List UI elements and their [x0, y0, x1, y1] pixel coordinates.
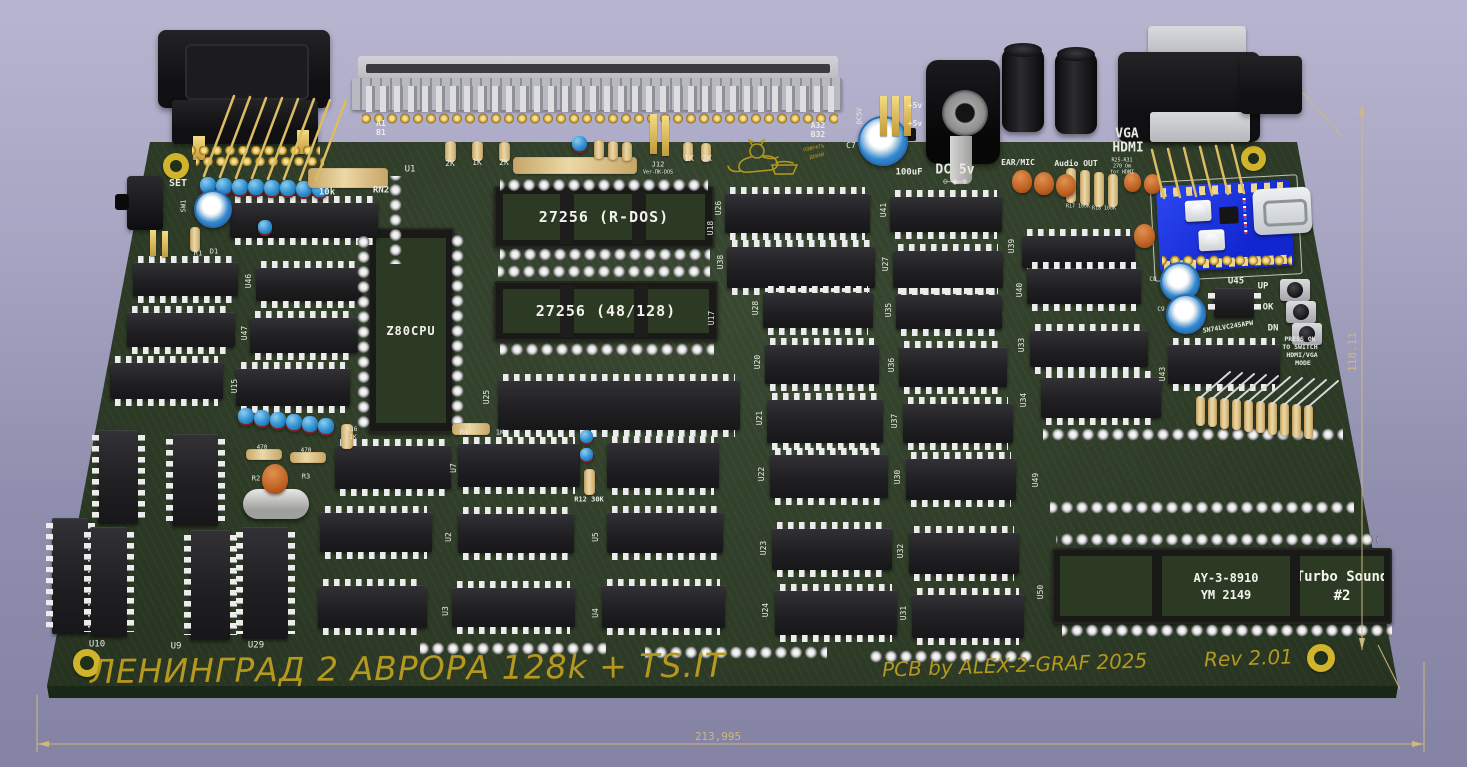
resistor	[1292, 404, 1301, 438]
pin-strip	[362, 110, 838, 126]
capacitor	[248, 179, 264, 195]
silkscreen-label: B32	[811, 131, 825, 139]
dip-chip	[763, 292, 873, 328]
dip-chip	[767, 399, 883, 443]
dip-chip	[318, 585, 427, 628]
dip-chip	[727, 246, 875, 288]
resistor	[622, 142, 632, 161]
dip-chip	[110, 362, 223, 399]
silkscreen-label: A32	[811, 122, 825, 130]
dip-chip	[250, 317, 358, 353]
dip-chip	[896, 294, 1002, 329]
z80-label: Z80CPU	[386, 324, 435, 338]
board-rev-silkscreen: Rev 2.01	[1204, 644, 1294, 671]
silkscreen-label: 1K	[349, 435, 356, 441]
silkscreen-label: R17 100K	[1066, 205, 1090, 210]
silkscreen-label: U29	[248, 642, 264, 651]
pin-strip	[192, 146, 320, 155]
dip-chip	[190, 530, 230, 640]
ceramic-capacitor	[1012, 170, 1032, 193]
dip-chip	[320, 512, 432, 552]
dip-chip	[903, 403, 1013, 443]
silkscreen-label: U36	[888, 358, 896, 372]
silkscreen-label: 470	[257, 445, 268, 451]
dip-chip	[1214, 288, 1254, 318]
dip-chip	[770, 454, 888, 498]
silkscreen-label: SET	[169, 179, 187, 189]
silkscreen-label: R18 100K	[1092, 207, 1116, 212]
silkscreen-label: RN2	[373, 187, 389, 196]
silkscreen-label: 470	[301, 448, 312, 454]
silkscreen-label: U27	[882, 257, 890, 271]
silkscreen-label: U50	[1037, 585, 1045, 599]
pin-strip	[450, 232, 465, 430]
resistor	[608, 141, 618, 160]
ceramic-capacitor	[1056, 174, 1076, 197]
pin-strip	[196, 157, 324, 166]
silkscreen-label: U4	[592, 608, 600, 618]
silkscreen-label: B1	[376, 129, 386, 137]
dip-chip	[335, 445, 451, 489]
dip-chip	[498, 380, 740, 430]
eprom1-label: 27256 (R-DOS)	[539, 208, 669, 226]
pin-strip	[1062, 620, 1392, 641]
silkscreen-label: U38	[717, 255, 725, 269]
silkscreen-label: C9	[1157, 307, 1164, 313]
dip-chip	[1027, 268, 1141, 304]
silkscreen-label: U9	[171, 643, 182, 652]
silkscreen-label: U31	[900, 606, 908, 620]
silkscreen-label: U33	[1018, 338, 1026, 352]
dip-chip	[127, 312, 235, 347]
pin-strip	[498, 263, 710, 279]
pin-strip	[366, 86, 834, 112]
silkscreen-label: R3	[302, 474, 310, 481]
capacitor	[580, 448, 593, 461]
silkscreen-label: PRESS OK	[1284, 336, 1315, 343]
dip-chip	[1041, 377, 1161, 418]
pin-strip	[500, 178, 708, 192]
silkscreen-label: 2K	[702, 155, 712, 163]
resistor	[1280, 403, 1289, 436]
silkscreen-label: UP	[1258, 283, 1269, 292]
pin-strip	[500, 341, 714, 358]
ceramic-capacitor	[1034, 172, 1054, 195]
silkscreen-label: U46	[245, 274, 253, 288]
silkscreen-label: U15	[231, 379, 239, 393]
silkscreen-label: U43	[1159, 367, 1167, 381]
silkscreen-label: U22	[758, 467, 766, 481]
dip-chip	[906, 458, 1016, 500]
silkscreen-label: R1	[194, 251, 202, 258]
gold-pin	[662, 116, 669, 156]
resistor	[190, 227, 200, 252]
silkscreen-label: U2	[445, 532, 453, 542]
silkscreen-label: OK	[1263, 304, 1274, 313]
silkscreen-label: +5v	[908, 102, 922, 110]
resistor	[584, 469, 595, 495]
gold-pin	[650, 114, 657, 154]
silkscreen-label: C7	[846, 142, 856, 150]
capacitor	[238, 408, 254, 424]
silkscreen-label: U17	[708, 311, 716, 325]
capacitor	[318, 418, 334, 434]
silkscreen-label: C8	[1149, 277, 1156, 283]
gold-pin	[880, 96, 887, 136]
gold-pin	[892, 96, 899, 136]
dip-chip	[133, 262, 238, 296]
silkscreen-label: 1K	[496, 430, 504, 437]
silkscreen-label: R16	[347, 427, 358, 433]
silkscreen-label: R12 30K	[574, 497, 604, 504]
resistor	[1208, 397, 1217, 427]
silkscreen-label: 2K	[445, 160, 455, 168]
silkscreen-label: TO SWITCH	[1282, 344, 1317, 351]
dip-chip	[772, 528, 892, 570]
silkscreen-label: U18	[707, 221, 715, 235]
silkscreen-label: DN	[1268, 325, 1279, 334]
silkscreen-label: for HDMI	[1110, 171, 1134, 176]
silkscreen-label: EAR/MIC	[1001, 159, 1035, 167]
resistor	[1232, 399, 1241, 430]
electrolytic-capacitor	[194, 190, 232, 228]
silkscreen-label: A1	[376, 120, 386, 128]
silkscreen-label: U26	[715, 201, 723, 215]
dip-chip	[725, 193, 870, 233]
capacitor	[280, 180, 296, 196]
silkscreen-label: 100uF	[895, 169, 922, 178]
resistor	[1196, 396, 1205, 426]
pin-strip	[1056, 531, 1378, 548]
silkscreen-label: U21	[756, 411, 764, 425]
resistor	[1080, 170, 1090, 205]
silkscreen-label: MODE	[1295, 360, 1311, 367]
silkscreen-label: U1	[405, 166, 416, 175]
ceramic-capacitor	[1144, 174, 1161, 194]
resistor	[1304, 405, 1313, 439]
resistor	[594, 140, 604, 159]
silkscreen-label: U35	[885, 303, 893, 317]
dip-chip	[890, 196, 1002, 232]
silkscreen-label: U10	[89, 641, 105, 650]
silkscreen-label: SN74LVC245APW	[1202, 320, 1253, 334]
silkscreen-label: DC 5v	[935, 164, 974, 177]
capacitor	[572, 136, 587, 151]
capacitor	[264, 180, 280, 196]
dip-chip	[602, 585, 725, 628]
silkscreen-label: R4	[460, 430, 468, 437]
silkscreen-label: U7	[450, 463, 458, 473]
silkscreen-label: U5	[592, 532, 600, 542]
dip-chip	[230, 202, 378, 238]
silkscreen-label: U23	[760, 541, 768, 555]
silkscreen-label: U24	[762, 603, 770, 617]
silkscreen-label: D1	[210, 249, 218, 256]
dip-chip	[52, 518, 88, 634]
silkscreen-label: 2K	[499, 159, 509, 167]
board-title-silkscreen: ЛЕНИНГРАД 2 АВРОРА 128k + TS.IT	[90, 644, 880, 691]
dip-chip	[912, 594, 1024, 638]
dip-chip	[909, 532, 1019, 574]
dip-chip	[242, 527, 288, 639]
silkscreen-label: 1K	[472, 159, 482, 167]
silkscreen-label: U30	[894, 470, 902, 484]
resistor	[1108, 174, 1118, 207]
silkscreen-label: U28	[752, 301, 760, 315]
resistor	[1268, 402, 1277, 435]
resistor	[513, 157, 637, 174]
silkscreen-label: U45	[1228, 278, 1244, 287]
dip-chip	[765, 344, 879, 384]
dip-chip	[172, 434, 218, 526]
capacitor	[580, 430, 593, 443]
silkscreen-label: J12	[652, 162, 665, 169]
dip-chip	[607, 442, 719, 488]
silkscreen-label: U37	[891, 414, 899, 428]
silkscreen-label: ДАВАЙ	[809, 153, 825, 161]
pin-strip	[500, 246, 710, 262]
dip-chip	[1168, 344, 1280, 384]
silkscreen-label: U40	[1016, 283, 1024, 297]
mode-tact-button	[1286, 301, 1316, 323]
silkscreen-label: U41	[880, 203, 888, 217]
pin-strip	[356, 236, 371, 428]
gold-pin	[162, 231, 168, 257]
dip-chip	[236, 368, 350, 406]
dip-chip	[458, 443, 580, 487]
dip-chip	[775, 590, 897, 635]
dip-chip	[458, 513, 574, 553]
silkscreen-label: SW1	[181, 200, 188, 213]
silkscreen-label: U47	[241, 326, 249, 340]
silkscreen-label: +5v	[908, 120, 922, 128]
silkscreen-label: HDMI/VGA	[1286, 352, 1317, 359]
capacitor	[258, 220, 272, 234]
gold-pin	[150, 230, 156, 256]
resistor	[1244, 400, 1253, 432]
dip-chip	[1030, 330, 1148, 367]
capacitor	[232, 179, 248, 195]
electrolytic-capacitor	[1166, 294, 1206, 334]
ceramic-capacitor	[1134, 224, 1155, 248]
silkscreen-label: U25	[483, 390, 491, 404]
ceramic-capacitor	[262, 464, 288, 494]
dip-chip	[899, 347, 1007, 387]
silkscreen-label: Ver-ПК-DOS	[643, 171, 673, 176]
silkscreen-label: U3	[442, 606, 450, 616]
silkscreen-label: U32	[897, 544, 905, 558]
silkscreen-label: DC5V	[857, 108, 864, 125]
capacitor	[270, 412, 286, 428]
silkscreen-label: U20	[754, 355, 762, 369]
eprom2-label: 27256 (48/128)	[536, 302, 676, 320]
dip-chip	[90, 527, 127, 637]
dip-chip	[452, 587, 575, 627]
pin-strip	[1050, 497, 1354, 517]
3d-viewer-canvas[interactable]: 27256 (R-DOS) 27256 (48/128) Z80CPU AY-3…	[0, 0, 1467, 767]
silkscreen-label: 10k	[319, 189, 335, 198]
resistor	[1220, 398, 1229, 429]
dip-chip	[98, 430, 138, 524]
resistor	[452, 423, 490, 435]
dip-chip	[256, 267, 362, 301]
silkscreen-label: 1K	[684, 155, 694, 163]
silkscreen-label: HDMI	[1112, 142, 1143, 155]
silkscreen-label: R2	[252, 476, 260, 483]
pin-strip	[388, 176, 403, 264]
silkscreen-label: Audio OUT	[1054, 160, 1097, 168]
capacitor	[254, 410, 270, 426]
dip-chip	[607, 512, 723, 553]
silkscreen-label: U39	[1008, 239, 1016, 253]
silkscreen-label: U49	[1032, 473, 1040, 487]
silkscreen-label: ⊖–◉–⊕	[943, 178, 967, 186]
resistor	[1256, 401, 1265, 433]
capacitor	[302, 416, 318, 432]
silkscreen-label: U34	[1020, 393, 1028, 407]
dip-chip	[893, 250, 1003, 288]
mode-tact-button	[1280, 279, 1310, 301]
capacitor	[286, 414, 302, 430]
resistor	[1094, 172, 1104, 207]
silkscreen-label: VGA	[1115, 128, 1138, 141]
